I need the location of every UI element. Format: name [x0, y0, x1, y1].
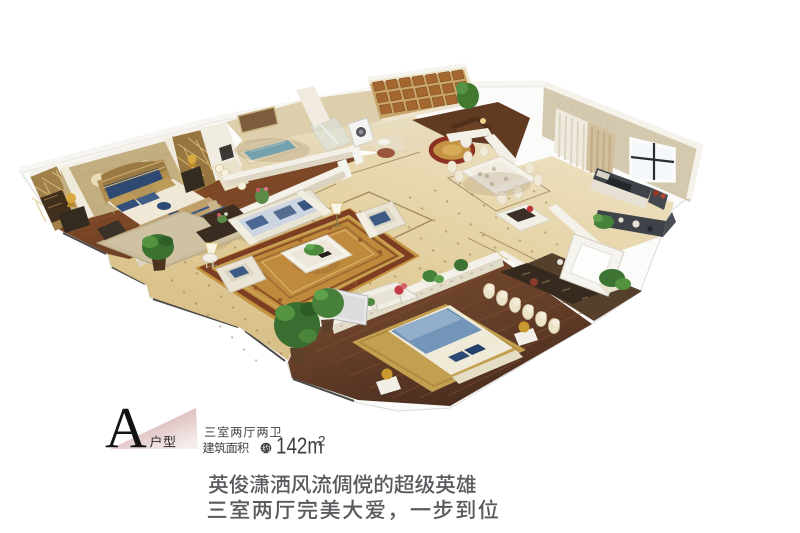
svg-text:A: A: [105, 396, 147, 461]
svg-text:2: 2: [318, 434, 326, 449]
svg-text:142m: 142m: [276, 433, 323, 459]
